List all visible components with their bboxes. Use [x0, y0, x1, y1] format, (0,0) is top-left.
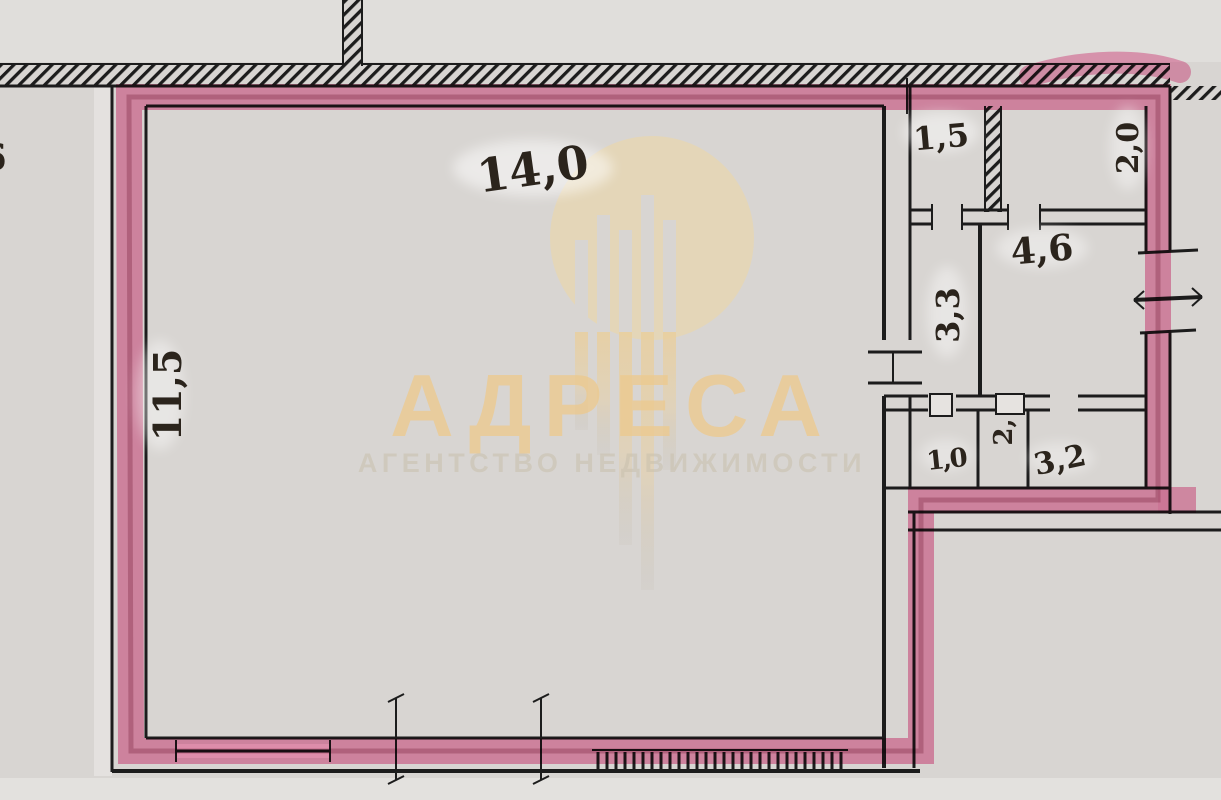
label-room-4-6: 4,6	[1009, 226, 1075, 273]
label-left-edge-fragment: 6	[0, 137, 7, 179]
label-room-2-fragment: 2,	[989, 418, 1019, 445]
label-room-1-0: 1,0	[925, 443, 968, 477]
floor-plan-drawing: АДРЕСА АГЕНТСТВО НЕДВИЖИМОСТИ 14,0 11,5 …	[0, 0, 1221, 800]
label-main-room-side: 11,5	[145, 349, 190, 442]
label-corridor-3-3: 3,3	[929, 287, 967, 343]
watermark-tagline: АГЕНТСТВО НЕДВИЖИМОСТИ	[358, 448, 866, 478]
label-room-1-5: 1,5	[912, 116, 971, 159]
watermark-brand: АДРЕСА	[390, 356, 834, 455]
floor-plan-image: АДРЕСА АГЕНТСТВО НЕДВИЖИМОСТИ 14,0 11,5 …	[0, 0, 1221, 800]
label-room-2-0: 2,0	[1111, 122, 1146, 174]
